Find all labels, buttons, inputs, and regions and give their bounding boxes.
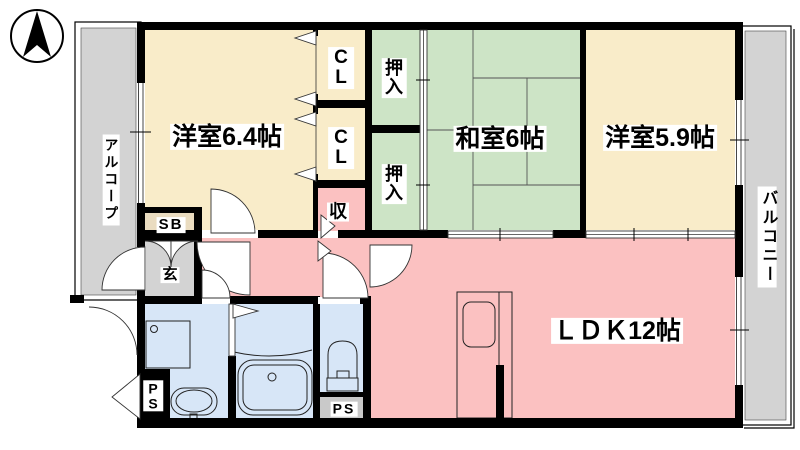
room-west2-label: 洋室5.9帖 [603, 125, 717, 151]
oshiire-lower-label: 押入 [382, 164, 407, 204]
floorplan-canvas: 洋室6.4帖 和室6帖 洋室5.9帖 ＬＤＫ12帖 CL CL 押入 押入 収 … [0, 0, 800, 450]
pipe-space-left-label: PS [143, 380, 163, 411]
exterior-door-swing-icon [89, 307, 137, 355]
entrance-label: 玄 [160, 267, 179, 283]
alcove-label: アルコープ [103, 135, 120, 226]
pipe-space-right-label: PS [331, 402, 358, 417]
compass-north-icon [11, 10, 63, 62]
shoe-box-label: SB [157, 217, 186, 233]
room-ldk-label: ＬＤＫ12帖 [551, 318, 683, 344]
toilet-room [313, 300, 371, 400]
room-west1-label: 洋室6.4帖 [170, 124, 284, 150]
oshiire-upper-label: 押入 [382, 58, 407, 98]
closet-upper-label: CL [328, 47, 354, 89]
storage-label: 収 [327, 203, 349, 222]
meter-box-door-icon [112, 374, 140, 419]
closet-lower-label: CL [328, 127, 354, 169]
balcony-label: バルコニー [758, 187, 777, 288]
room-japanese-label: 和室6帖 [454, 126, 547, 152]
